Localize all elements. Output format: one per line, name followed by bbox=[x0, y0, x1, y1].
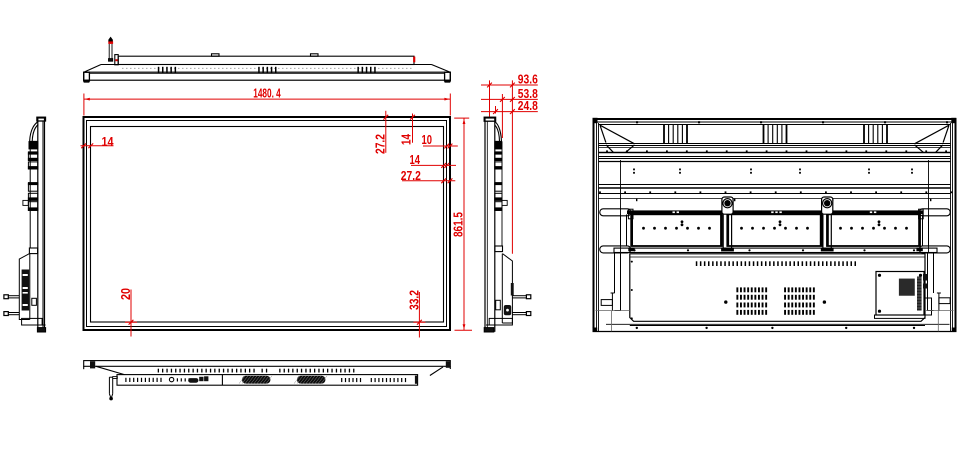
svg-text:1480. 4: 1480. 4 bbox=[253, 85, 281, 100]
svg-text:27.2: 27.2 bbox=[373, 134, 388, 154]
svg-text:93.6: 93.6 bbox=[518, 71, 538, 86]
svg-text:861.5: 861.5 bbox=[450, 212, 465, 237]
svg-text:14: 14 bbox=[399, 133, 414, 145]
svg-text:14: 14 bbox=[410, 152, 421, 167]
svg-text:10: 10 bbox=[422, 132, 433, 147]
svg-text:14: 14 bbox=[102, 134, 115, 149]
svg-text:27.2: 27.2 bbox=[401, 168, 421, 183]
svg-text:20: 20 bbox=[118, 288, 133, 300]
svg-text:24.8: 24.8 bbox=[518, 98, 538, 113]
svg-text:33.2: 33.2 bbox=[406, 290, 421, 310]
